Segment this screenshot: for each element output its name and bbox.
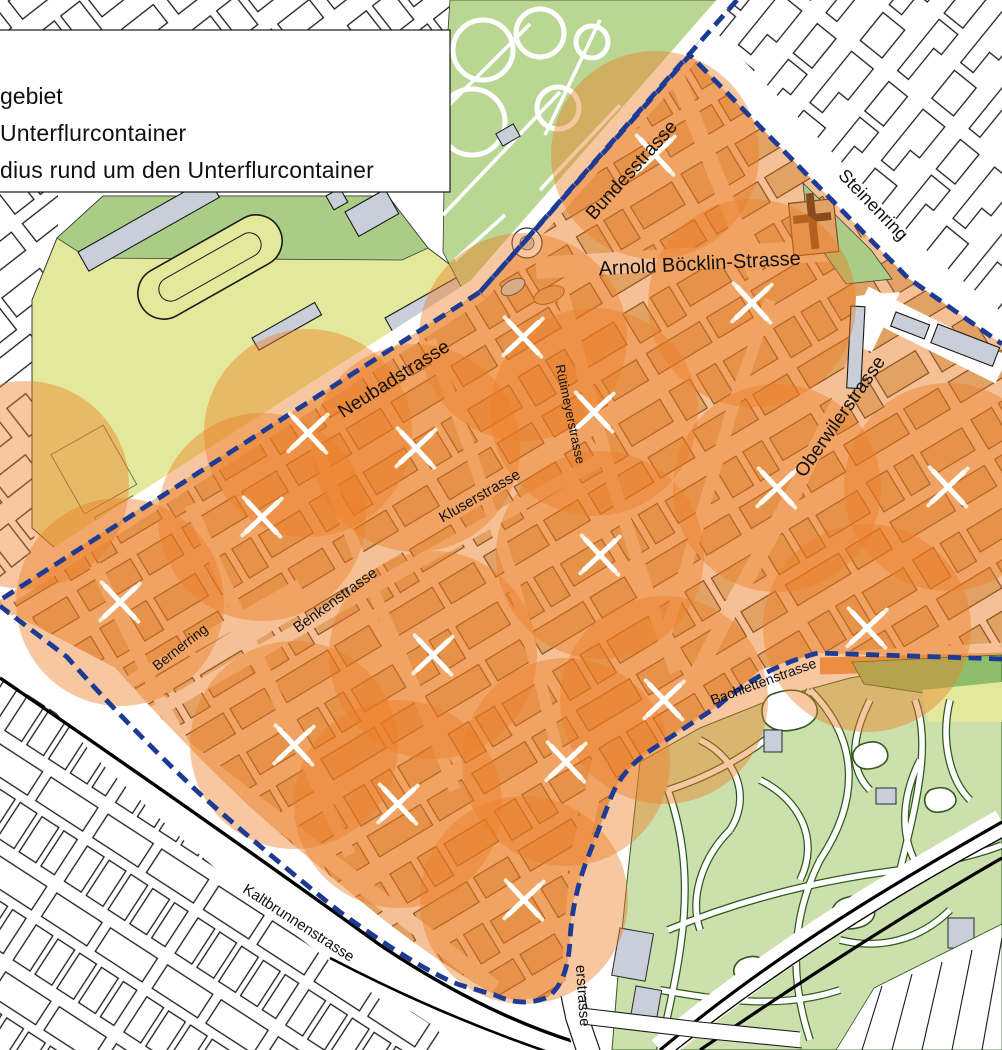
svg-text:Unterflurcontainer: Unterflurcontainer — [0, 120, 187, 146]
svg-text:gebiet: gebiet — [0, 83, 63, 109]
svg-text:dius rund um den Unterflurcont: dius rund um den Unterflurcontainer — [0, 157, 374, 183]
